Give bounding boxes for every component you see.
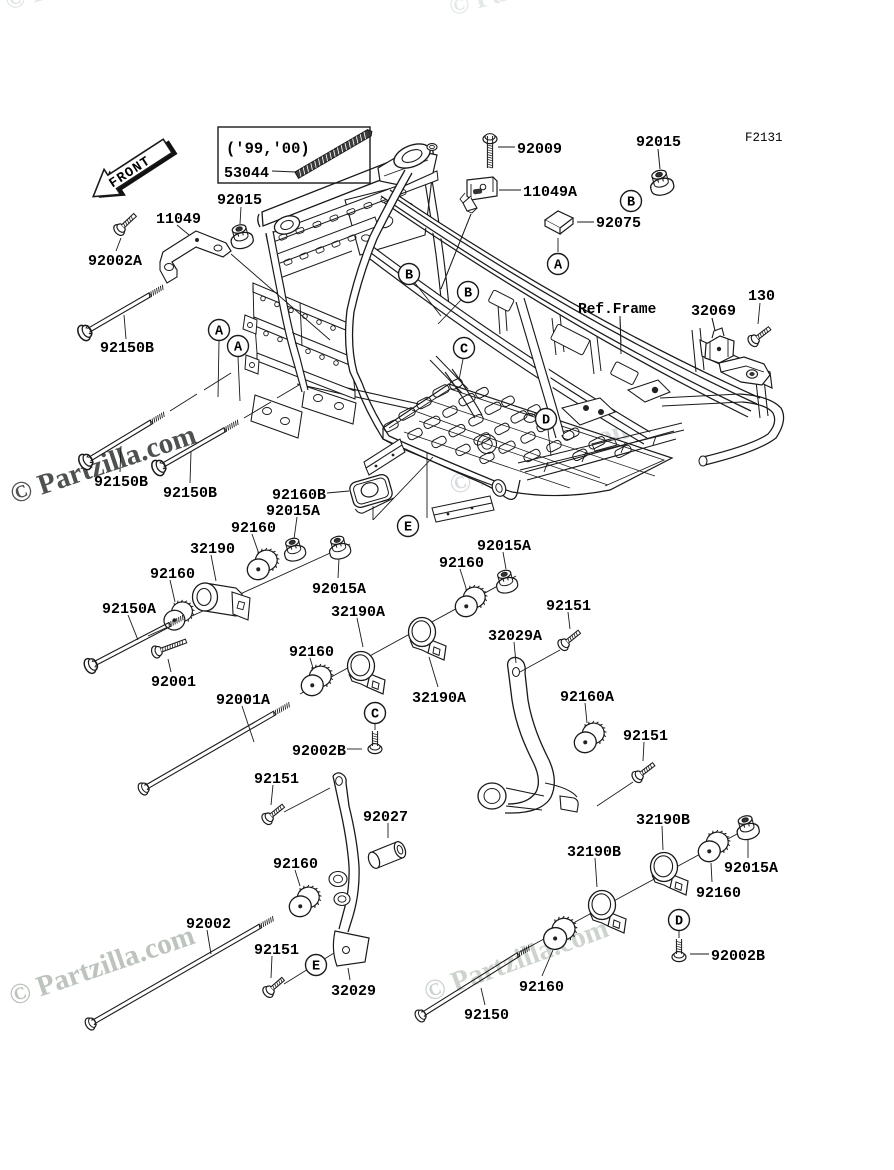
- svg-text:92151: 92151: [254, 771, 299, 788]
- svg-text:92160B: 92160B: [272, 487, 326, 504]
- svg-text:F2131: F2131: [745, 131, 783, 145]
- svg-text:53044: 53044: [224, 165, 269, 182]
- svg-text:11049: 11049: [156, 211, 201, 228]
- svg-text:32029A: 32029A: [488, 628, 542, 645]
- svg-text:('99,'00): ('99,'00): [226, 140, 310, 158]
- svg-text:92150B: 92150B: [100, 340, 154, 357]
- svg-text:92027: 92027: [363, 809, 408, 826]
- svg-text:32029: 32029: [331, 983, 376, 1000]
- svg-text:32069: 32069: [691, 303, 736, 320]
- svg-text:92150B: 92150B: [94, 474, 148, 491]
- svg-text:D: D: [675, 915, 683, 930]
- svg-text:92160: 92160: [439, 555, 484, 572]
- svg-text:32190B: 32190B: [567, 844, 621, 861]
- svg-text:92160: 92160: [150, 566, 195, 583]
- svg-text:92151: 92151: [254, 942, 299, 959]
- svg-text:92150B: 92150B: [163, 485, 217, 502]
- svg-text:32190: 32190: [190, 541, 235, 558]
- svg-text:92160: 92160: [231, 520, 276, 537]
- svg-text:B: B: [405, 269, 413, 284]
- svg-text:A: A: [554, 259, 563, 274]
- svg-text:D: D: [542, 414, 550, 429]
- svg-text:92150A: 92150A: [102, 601, 156, 618]
- svg-text:92015A: 92015A: [312, 581, 366, 598]
- svg-text:C: C: [371, 708, 379, 723]
- svg-text:32190B: 32190B: [636, 812, 690, 829]
- svg-text:32190A: 32190A: [331, 604, 385, 621]
- svg-text:A: A: [234, 341, 243, 356]
- svg-text:92160A: 92160A: [560, 689, 614, 706]
- svg-text:92160: 92160: [519, 979, 564, 996]
- svg-text:92002A: 92002A: [88, 253, 142, 270]
- svg-text:E: E: [312, 960, 320, 975]
- svg-text:92002B: 92002B: [292, 743, 346, 760]
- svg-text:B: B: [464, 287, 472, 302]
- svg-text:Ref.Frame: Ref.Frame: [578, 302, 656, 318]
- svg-text:92151: 92151: [623, 728, 668, 745]
- svg-text:C: C: [460, 343, 468, 358]
- svg-text:92015: 92015: [636, 134, 681, 151]
- svg-text:130: 130: [748, 288, 775, 305]
- svg-text:11049A: 11049A: [523, 184, 577, 201]
- svg-text:92015A: 92015A: [724, 860, 778, 877]
- svg-text:B: B: [627, 196, 635, 211]
- svg-text:92075: 92075: [596, 215, 641, 232]
- svg-text:92015: 92015: [217, 192, 262, 209]
- svg-text:92015A: 92015A: [266, 503, 320, 520]
- svg-text:92009: 92009: [517, 141, 562, 158]
- svg-text:92160: 92160: [289, 644, 334, 661]
- svg-text:92160: 92160: [696, 885, 741, 902]
- svg-text:92150: 92150: [464, 1007, 509, 1024]
- svg-text:92151: 92151: [546, 598, 591, 615]
- svg-text:92015A: 92015A: [477, 538, 531, 555]
- svg-text:92001A: 92001A: [216, 692, 270, 709]
- svg-text:32190A: 32190A: [412, 690, 466, 707]
- svg-text:E: E: [404, 521, 412, 536]
- svg-text:92001: 92001: [151, 674, 196, 691]
- svg-text:92002B: 92002B: [711, 948, 765, 965]
- svg-text:92002: 92002: [186, 916, 231, 933]
- svg-text:A: A: [215, 325, 224, 340]
